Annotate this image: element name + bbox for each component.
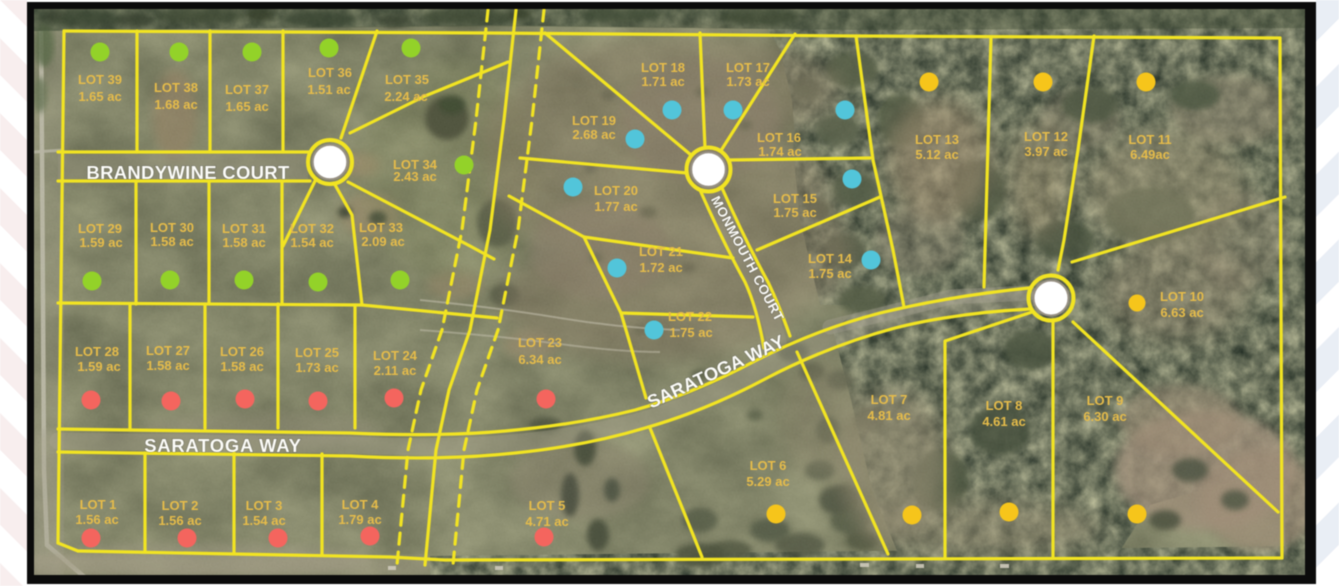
svg-text:LOT 1: LOT 1 <box>80 497 117 512</box>
svg-text:LOT 20: LOT 20 <box>594 183 638 198</box>
svg-text:1.73 ac: 1.73 ac <box>726 74 769 89</box>
svg-text:2.24 ac: 2.24 ac <box>384 89 427 104</box>
svg-text:1.51 ac: 1.51 ac <box>307 82 350 97</box>
svg-text:1.58 ac: 1.58 ac <box>222 235 265 250</box>
svg-text:3.97 ac: 3.97 ac <box>1024 144 1067 159</box>
svg-text:LOT 10: LOT 10 <box>1160 289 1204 304</box>
svg-text:6.49ac: 6.49ac <box>1130 147 1170 162</box>
svg-text:6.63 ac: 6.63 ac <box>1160 305 1203 320</box>
svg-text:LOT 8: LOT 8 <box>986 398 1023 413</box>
svg-text:LOT 4: LOT 4 <box>342 497 380 512</box>
svg-text:LOT 3: LOT 3 <box>246 498 283 513</box>
svg-text:1.68 ac: 1.68 ac <box>154 97 197 112</box>
svg-text:1.58 ac: 1.58 ac <box>146 358 189 373</box>
svg-text:LOT 11: LOT 11 <box>1128 132 1171 147</box>
svg-text:LOT 31: LOT 31 <box>222 221 266 236</box>
svg-text:LOT 27: LOT 27 <box>146 343 190 358</box>
svg-text:LOT 37: LOT 37 <box>225 82 269 97</box>
svg-text:1.77 ac: 1.77 ac <box>594 199 637 214</box>
svg-text:LOT 25: LOT 25 <box>295 345 339 360</box>
svg-text:1.75 ac: 1.75 ac <box>773 205 816 220</box>
svg-text:1.74 ac: 1.74 ac <box>758 144 801 159</box>
svg-text:LOT 32: LOT 32 <box>290 221 334 236</box>
svg-text:5.29 ac: 5.29 ac <box>746 474 789 489</box>
svg-text:LOT 33: LOT 33 <box>359 220 403 235</box>
svg-text:1.71 ac: 1.71 ac <box>641 74 684 89</box>
svg-text:LOT 21: LOT 21 <box>639 244 683 259</box>
svg-text:LOT 22: LOT 22 <box>668 309 712 324</box>
svg-text:1.54 ac: 1.54 ac <box>290 235 333 250</box>
svg-text:SARATOGA WAY: SARATOGA WAY <box>144 435 301 456</box>
svg-text:1.56 ac: 1.56 ac <box>158 513 201 528</box>
svg-text:BRANDYWINE COURT: BRANDYWINE COURT <box>86 162 290 183</box>
svg-text:LOT 17: LOT 17 <box>726 60 770 75</box>
svg-text:LOT 30: LOT 30 <box>150 220 194 235</box>
svg-text:1.73 ac: 1.73 ac <box>295 360 338 375</box>
svg-text:1.75 ac: 1.75 ac <box>808 266 851 281</box>
svg-text:1.65 ac: 1.65 ac <box>78 89 121 104</box>
svg-text:1.72 ac: 1.72 ac <box>639 260 682 275</box>
svg-text:1.59 ac: 1.59 ac <box>79 235 122 250</box>
svg-text:6.30 ac: 6.30 ac <box>1083 409 1126 424</box>
svg-text:1.59 ac: 1.59 ac <box>77 359 120 374</box>
svg-text:LOT 12: LOT 12 <box>1024 129 1068 144</box>
svg-text:LOT 14: LOT 14 <box>808 251 853 266</box>
svg-text:LOT 36: LOT 36 <box>308 65 352 80</box>
svg-text:LOT 23: LOT 23 <box>518 335 562 350</box>
svg-text:LOT 5: LOT 5 <box>529 498 566 513</box>
svg-text:LOT 38: LOT 38 <box>154 80 198 95</box>
svg-text:4.81 ac: 4.81 ac <box>867 408 910 423</box>
svg-text:5.12 ac: 5.12 ac <box>915 147 958 162</box>
svg-text:LOT 19: LOT 19 <box>572 113 616 128</box>
svg-text:LOT 15: LOT 15 <box>773 191 817 206</box>
svg-text:LOT 9: LOT 9 <box>1087 393 1124 408</box>
svg-text:LOT 28: LOT 28 <box>75 344 119 359</box>
svg-text:1.75 ac: 1.75 ac <box>669 325 712 340</box>
svg-text:LOT 39: LOT 39 <box>78 72 122 87</box>
svg-text:1.56 ac: 1.56 ac <box>75 512 118 527</box>
svg-text:LOT 26: LOT 26 <box>220 344 264 359</box>
svg-text:LOT 2: LOT 2 <box>162 498 199 513</box>
svg-text:LOT 29: LOT 29 <box>78 221 122 236</box>
svg-text:LOT 13: LOT 13 <box>915 132 959 147</box>
svg-text:LOT 6: LOT 6 <box>750 458 787 473</box>
svg-text:1.65 ac: 1.65 ac <box>225 99 268 114</box>
svg-text:1.58 ac: 1.58 ac <box>220 359 263 374</box>
svg-text:LOT 7: LOT 7 <box>871 392 908 407</box>
svg-text:6.34 ac: 6.34 ac <box>518 352 561 367</box>
svg-text:2.68 ac: 2.68 ac <box>572 127 615 142</box>
svg-text:1.54 ac: 1.54 ac <box>242 513 285 528</box>
svg-text:2.11 ac: 2.11 ac <box>374 363 417 378</box>
svg-text:LOT 16: LOT 16 <box>757 130 801 145</box>
svg-text:LOT 24: LOT 24 <box>373 348 418 363</box>
svg-text:4.61 ac: 4.61 ac <box>982 414 1025 429</box>
svg-text:LOT 18: LOT 18 <box>641 60 685 75</box>
svg-text:LOT 35: LOT 35 <box>385 72 429 87</box>
svg-text:1.58 ac: 1.58 ac <box>150 234 193 249</box>
svg-text:4.71 ac: 4.71 ac <box>525 514 568 529</box>
svg-text:1.79 ac: 1.79 ac <box>338 512 381 527</box>
svg-text:2.09 ac: 2.09 ac <box>361 234 404 249</box>
svg-text:2.43 ac: 2.43 ac <box>393 169 436 184</box>
